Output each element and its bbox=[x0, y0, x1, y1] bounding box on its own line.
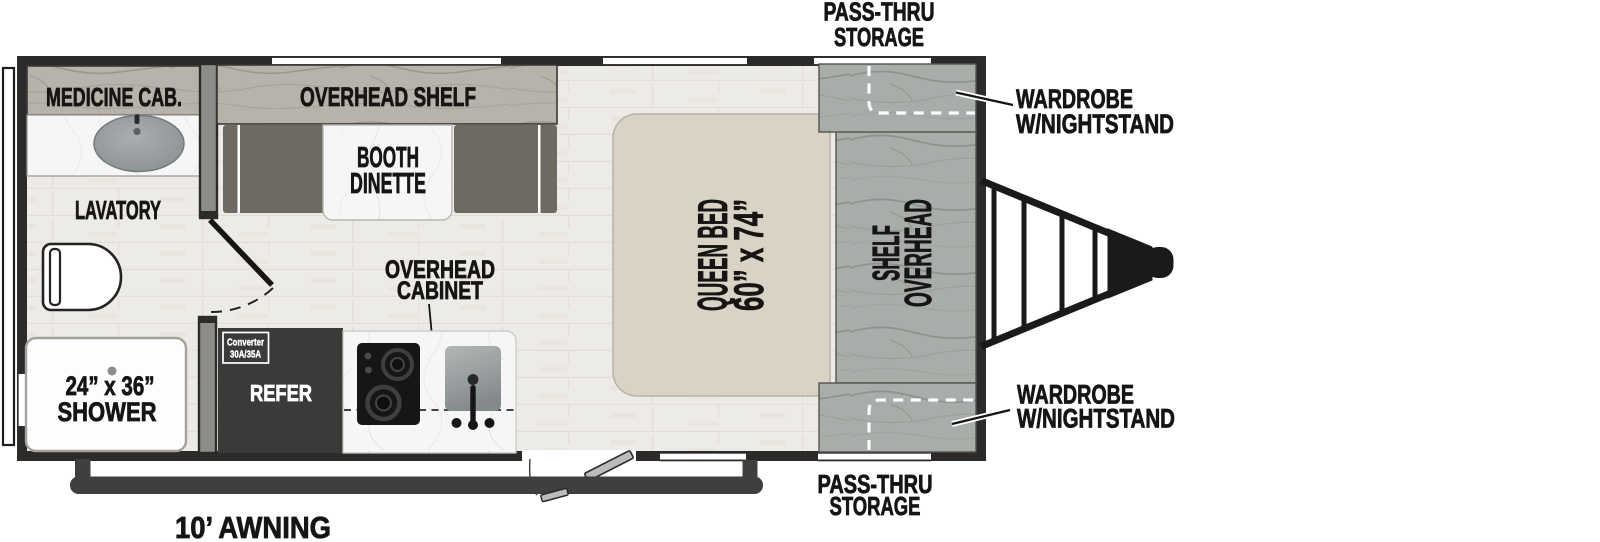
svg-text:OVERHEAD SHELF: OVERHEAD SHELF bbox=[300, 82, 476, 112]
svg-text:CABINET: CABINET bbox=[397, 277, 483, 305]
svg-text:REFER: REFER bbox=[250, 380, 312, 406]
svg-text:MEDICINE CAB.: MEDICINE CAB. bbox=[46, 82, 182, 112]
svg-text:W/NIGHTSTAND: W/NIGHTSTAND bbox=[1017, 404, 1175, 434]
svg-text:STORAGE: STORAGE bbox=[834, 22, 924, 52]
svg-text:10’ AWNING: 10’ AWNING bbox=[175, 510, 331, 542]
svg-text:STORAGE: STORAGE bbox=[830, 491, 921, 521]
svg-text:DINETTE: DINETTE bbox=[350, 168, 426, 200]
svg-text:Converter: Converter bbox=[227, 338, 264, 349]
svg-text:W/NIGHTSTAND: W/NIGHTSTAND bbox=[1016, 109, 1174, 139]
svg-text:SHELF: SHELF bbox=[866, 225, 908, 281]
svg-text:LAVATORY: LAVATORY bbox=[75, 195, 161, 225]
svg-text:SHOWER: SHOWER bbox=[58, 397, 157, 427]
svg-text:30A/35A: 30A/35A bbox=[230, 350, 261, 361]
svg-text:QUEEN BED: QUEEN BED bbox=[689, 199, 736, 311]
